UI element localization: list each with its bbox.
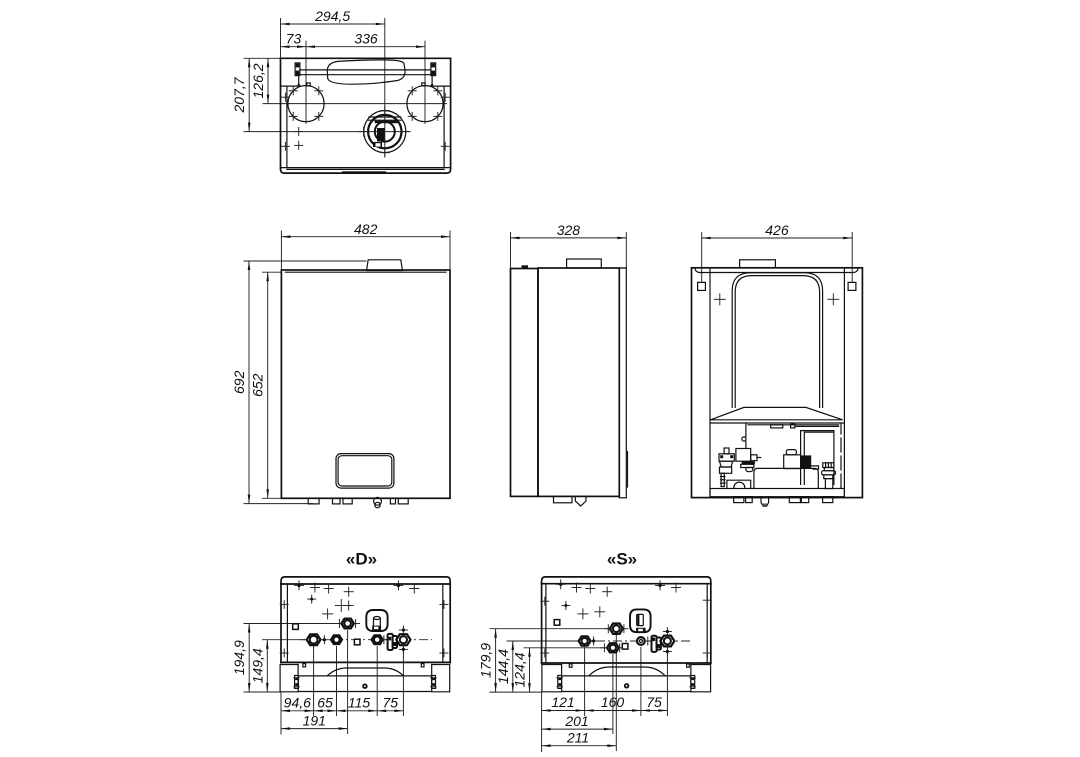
svg-text:75: 75	[646, 694, 662, 710]
svg-text:191: 191	[303, 712, 326, 728]
svg-text:121: 121	[551, 694, 574, 710]
svg-text:179,9: 179,9	[478, 643, 494, 678]
svg-text:94,6: 94,6	[284, 695, 311, 711]
svg-text:692: 692	[231, 370, 247, 394]
svg-text:328: 328	[557, 222, 581, 238]
svg-text:294,5: 294,5	[314, 8, 350, 24]
svg-text:126,2: 126,2	[250, 63, 266, 98]
svg-text:115: 115	[348, 695, 371, 711]
svg-text:149,4: 149,4	[249, 648, 265, 683]
svg-text:207,7: 207,7	[231, 76, 247, 113]
svg-text:«D»: «D»	[346, 550, 377, 569]
svg-text:73: 73	[286, 31, 302, 47]
svg-text:652: 652	[250, 373, 266, 397]
svg-text:«S»: «S»	[607, 550, 637, 569]
svg-text:144,4: 144,4	[495, 649, 511, 684]
svg-text:336: 336	[354, 31, 378, 47]
svg-text:211: 211	[566, 729, 589, 745]
svg-text:201: 201	[564, 713, 588, 729]
svg-text:124,4: 124,4	[512, 652, 528, 687]
svg-text:194,9: 194,9	[231, 640, 247, 675]
svg-text:426: 426	[765, 222, 789, 238]
svg-text:65: 65	[317, 695, 333, 711]
svg-text:75: 75	[383, 695, 399, 711]
svg-text:160: 160	[601, 694, 625, 710]
svg-text:482: 482	[354, 221, 378, 237]
